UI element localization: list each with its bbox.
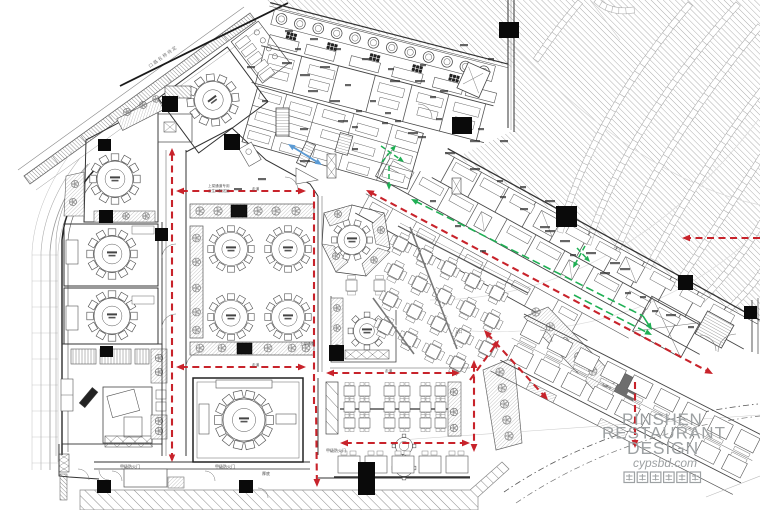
svg-text:甲级防火门: 甲级防火门 [215,463,235,469]
svg-text:走道: 走道 [252,362,260,367]
svg-text:走道: 走道 [385,368,393,373]
svg-text:入口: 入口 [455,329,463,334]
svg-text:cypsbd.com: cypsbd.com [633,456,697,470]
svg-text:DESIGN: DESIGN [627,438,699,458]
svg-text:上菜通道专用: 上菜通道专用 [208,183,230,188]
svg-text:上菜通道: 上菜通道 [300,341,315,346]
svg-text:甲级防火门: 甲级防火门 [120,463,140,469]
svg-text:甲级防火门: 甲级防火门 [326,447,346,453]
svg-text:厚底: 厚底 [262,470,270,476]
svg-text:走道: 走道 [252,186,260,191]
svg-text:卫生间配送区: 卫生间配送区 [208,188,230,193]
